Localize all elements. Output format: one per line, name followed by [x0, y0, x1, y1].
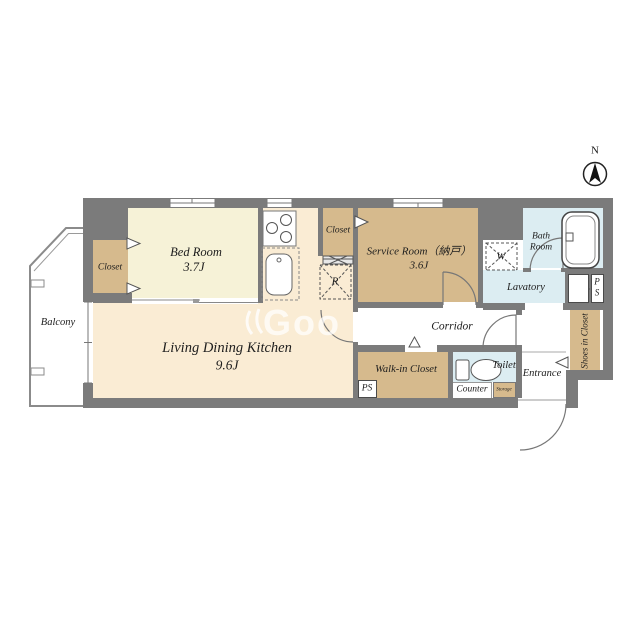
hall-closet-door-marker [355, 216, 368, 228]
lavatory-label: Lavatory [507, 283, 545, 294]
bathtub-icon [562, 212, 599, 268]
water-heater-box [568, 274, 589, 303]
bedroom-area-label: 3.7J [183, 261, 204, 274]
pipe-shaft-lower-label: PS [362, 384, 373, 394]
walk-in-closet-door-marker [409, 337, 420, 347]
kitchen-sink-icon [262, 248, 299, 300]
bedroom-sliding-door [132, 298, 258, 304]
hall-closet-label: Closet [326, 226, 350, 236]
service-room-window [393, 199, 443, 207]
ldk-area-label: 9.6J [216, 358, 239, 372]
pipe-shaft-upper-label-p: P [594, 278, 600, 287]
walk-in-closet-label: Walk-in Closet [375, 365, 437, 376]
bath-room-label-line1: Bath [532, 232, 550, 242]
entrance-label: Entrance [523, 369, 562, 380]
service-room-door [443, 272, 476, 305]
floor-plan: Goo N Balcony Bed Room 3.7J Closet Livin… [0, 0, 640, 640]
toilet-label: Toilet [492, 361, 516, 372]
balcony-label: Balcony [41, 318, 75, 329]
bedroom-label: Bed Room [170, 246, 222, 259]
bath-room-label-line2: Room [530, 243, 552, 253]
bedroom-closet-door-marker-top [127, 238, 140, 249]
shoes-closet-label: Shoes in Closet [581, 313, 590, 369]
balcony-sliding-window [84, 302, 92, 383]
pipe-shaft-upper-label-s: S [595, 289, 600, 298]
balcony-partition-a [31, 280, 44, 287]
watermark-text: Goo [263, 302, 341, 344]
washer-label: W [496, 252, 505, 263]
stove-icon [263, 211, 296, 246]
louver-icon [323, 256, 353, 264]
corridor-hall-door [483, 315, 516, 348]
bedroom-window [170, 199, 215, 207]
entrance-door [520, 404, 566, 450]
counter-label: Counter [456, 385, 487, 395]
kitchen-window [267, 199, 292, 207]
bedroom-closet-door-marker-bottom [127, 283, 140, 294]
service-room-area-label: 3.6J [410, 261, 429, 272]
corridor-label: Corridor [431, 321, 473, 333]
refrigerator-label: R [332, 277, 339, 288]
watermark-mascot [247, 309, 262, 334]
north-arrow-icon [584, 163, 607, 186]
service-room-label: Service Room（納戸） [367, 247, 472, 258]
ldk-label: Living Dining Kitchen [162, 341, 292, 356]
shoes-closet-door-marker [556, 357, 568, 368]
balcony-inner-line [34, 234, 83, 272]
storage-label: Storage [496, 388, 512, 393]
bedroom-closet-label: Closet [98, 263, 122, 273]
balcony-partition-b [31, 368, 44, 375]
north-label: N [591, 146, 599, 157]
